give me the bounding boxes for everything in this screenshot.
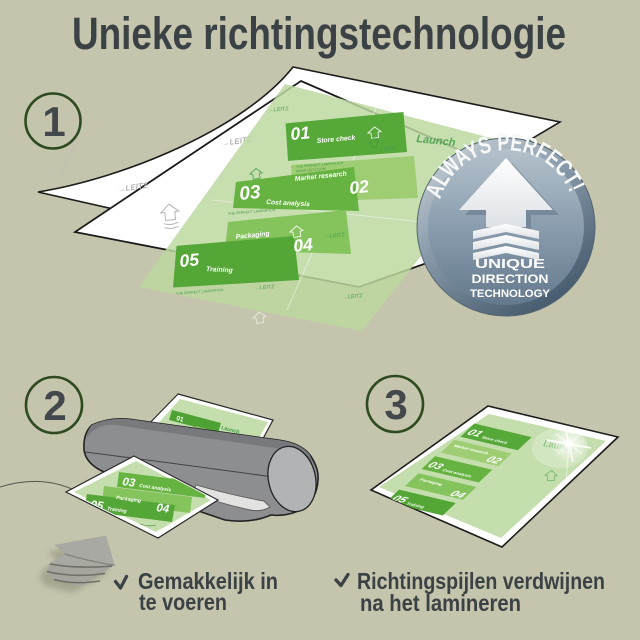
svg-text:05: 05 [179,249,200,271]
svg-text:UNIQUE: UNIQUE [475,256,545,271]
svg-text:TECHNOLOGY: TECHNOLOGY [470,288,551,300]
svg-text:01: 01 [290,122,311,144]
svg-text:1: 1 [42,98,65,145]
svg-text:te voeren: te voeren [139,589,227,615]
svg-text:Training: Training [206,266,234,274]
svg-text:02: 02 [348,176,370,198]
svg-text:DIRECTION: DIRECTION [472,274,549,286]
svg-text:Unieke richtingstechnologie: Unieke richtingstechnologie [72,8,566,59]
svg-text:03: 03 [238,182,262,205]
svg-text:2: 2 [43,382,66,429]
svg-text:na het lamineren: na het lamineren [360,590,521,616]
svg-text:03: 03 [122,476,137,490]
svg-text:3: 3 [384,381,407,428]
svg-text:04: 04 [156,502,171,516]
